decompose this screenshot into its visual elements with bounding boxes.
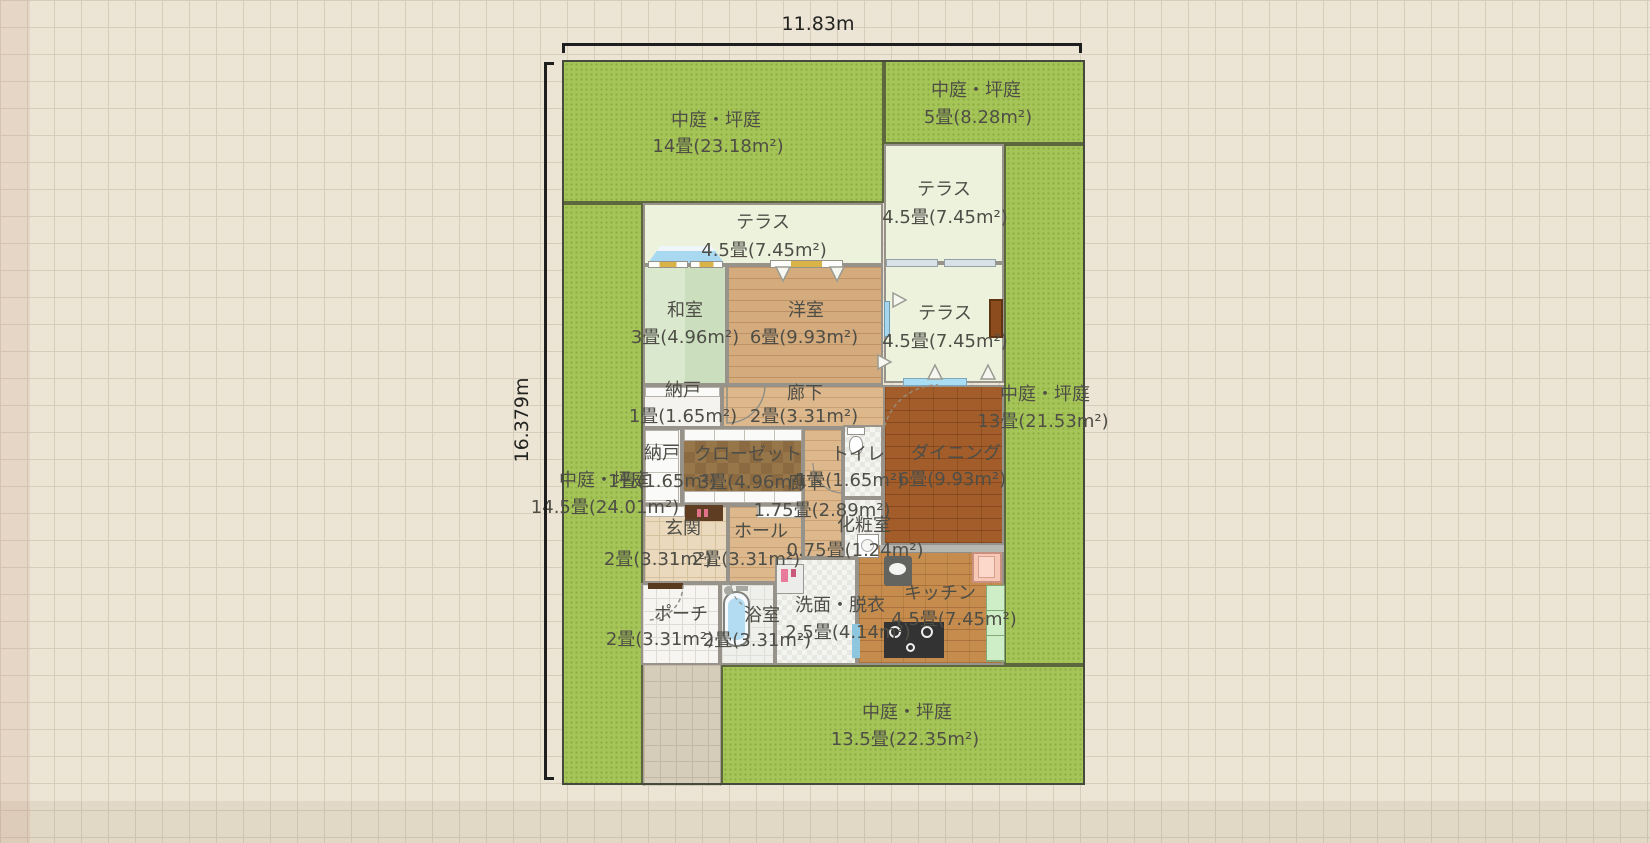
slipper-icon (704, 509, 708, 517)
label-terrace-top-size: 4.5畳(7.45m²) (701, 242, 827, 260)
washitsu-window-icon[interactable] (648, 261, 688, 268)
label-keshoshitsu-size: 0.75畳(1.24m²) (787, 542, 924, 560)
dimension-tick (544, 62, 554, 65)
label-bathroom-name: 浴室 (744, 607, 780, 625)
room-terrace-right-upper[interactable] (884, 144, 1004, 263)
label-rouka-upper-name: 廊下 (787, 385, 823, 403)
canvas-bottom-edge-shading (0, 801, 1650, 843)
refrigerator-door-icon (978, 556, 995, 578)
room-youshitsu[interactable] (727, 265, 883, 385)
label-garden-bottom-size: 13.5畳(22.35m²) (831, 731, 979, 749)
garden-top-right[interactable] (884, 60, 1085, 144)
label-terrace-right-upper-name: テラス (917, 181, 971, 199)
label-senmen-name: 洗面・脱衣 (795, 597, 885, 615)
label-toilet-name: トイレ (831, 446, 885, 464)
kitchen-sink-basin-icon (889, 563, 906, 575)
label-rouka-lower-name: 廊下 (788, 475, 824, 493)
label-porch-size: 2畳(3.31m²) (606, 631, 714, 649)
closet-shelf-top-icon[interactable] (684, 429, 802, 441)
garden-left[interactable] (562, 203, 643, 785)
garden-bottom[interactable] (721, 665, 1085, 785)
label-nando-lower-name: 納戸 (644, 445, 680, 463)
entrance-door-icon[interactable] (648, 583, 683, 589)
dimension-line-left (544, 62, 547, 780)
dimension-tick (562, 43, 565, 53)
label-youshitsu-size: 6畳(9.93m²) (750, 329, 858, 347)
dimension-tick (1079, 43, 1082, 53)
dimension-tick (544, 777, 554, 780)
label-youshitsu-name: 洋室 (788, 302, 824, 320)
label-garden-top-right-name: 中庭・坪庭 (931, 82, 1021, 100)
floorplan-canvas: 中庭・坪庭 14畳(23.18m²) 中庭・坪庭 5畳(8.28m²) 中庭・坪… (0, 0, 1650, 843)
canvas-left-edge-shading (0, 0, 30, 843)
label-hall-name: ホール (734, 523, 788, 541)
label-kitchen-name: キッチン (904, 585, 976, 603)
dining-window-icon[interactable] (903, 378, 967, 386)
shower-bar-icon (736, 586, 748, 591)
terrace-window-icon[interactable] (886, 259, 938, 267)
label-garden-right-name: 中庭・坪庭 (1000, 386, 1090, 404)
label-terrace-top-name: テラス (736, 214, 790, 232)
label-garden-bottom-name: 中庭・坪庭 (862, 704, 952, 722)
label-garden-top-name: 中庭・坪庭 (671, 112, 761, 130)
label-garden-top-size: 14畳(23.18m²) (652, 138, 783, 156)
nando-shelf-icon[interactable] (645, 430, 679, 503)
washing-machine-knob-icon (791, 569, 796, 577)
youshitsu-window-icon[interactable] (770, 260, 843, 268)
dimension-height-label: 16.379m (511, 378, 533, 463)
label-terrace-right-lower-size: 4.5畳(7.45m²) (882, 333, 1008, 351)
toilet-tank-icon[interactable] (847, 427, 865, 435)
washitsu-window2-icon[interactable] (690, 261, 723, 268)
slipper-icon (697, 509, 701, 517)
stove-burner-icon (906, 643, 915, 652)
label-terrace-right-lower-name: テラス (918, 305, 972, 323)
label-garden-left-size: 14.5畳(24.01m²) (531, 499, 679, 517)
label-dining-name: ダイニング (911, 445, 1001, 463)
label-kitchen-size: 4.5畳(7.45m²) (891, 611, 1017, 629)
label-garden-top-right-size: 5畳(8.28m²) (924, 109, 1032, 127)
label-porch-name: ポーチ (654, 606, 708, 624)
label-nando-upper-name: 納戸 (665, 382, 701, 400)
label-closet-name: クローゼット (694, 446, 802, 464)
label-dining-size: 6畳(9.93m²) (898, 471, 1006, 489)
label-washitsu-name: 和室 (667, 302, 703, 320)
label-hall-size: 2畳(3.31m²) (692, 551, 800, 569)
label-nando-upper-size: 1畳(1.65m²) (629, 408, 737, 426)
room-dining[interactable] (883, 385, 1004, 545)
terrace-window2-icon[interactable] (944, 259, 996, 267)
label-rouka-upper-size: 2畳(3.31m²) (750, 408, 858, 426)
label-genkan-name: 玄関 (665, 520, 701, 538)
shower-icon (724, 586, 733, 595)
washing-machine-detail-icon (781, 569, 788, 582)
label-washitsu-size: 3畳(4.96m²) (631, 329, 739, 347)
label-keshoshitsu-name: 化粧室 (837, 517, 891, 535)
garden-top[interactable] (562, 60, 884, 203)
dimension-width-label: 11.83m (782, 13, 855, 35)
room-washitsu[interactable] (643, 265, 727, 385)
approach-path[interactable] (643, 665, 721, 786)
dimension-line-top (562, 43, 1082, 46)
label-garden-right-size: 13畳(21.53m²) (977, 413, 1108, 431)
label-terrace-right-upper-size: 4.5畳(7.45m²) (882, 209, 1008, 227)
